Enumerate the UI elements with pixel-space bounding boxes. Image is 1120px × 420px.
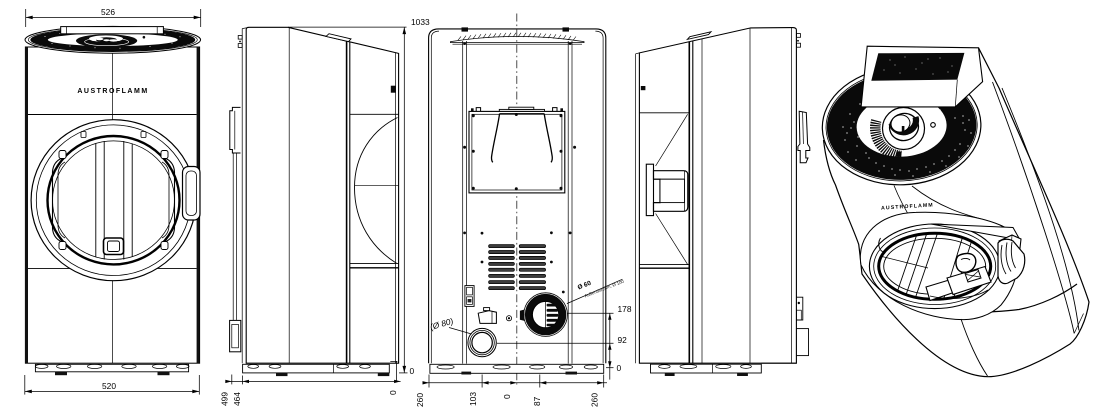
svg-text:520: 520	[102, 381, 116, 391]
svg-text:0: 0	[388, 390, 398, 395]
svg-text:499: 499	[220, 392, 230, 406]
svg-text:526: 526	[101, 7, 115, 17]
svg-text:92: 92	[618, 335, 628, 345]
svg-text:1033: 1033	[411, 17, 430, 27]
svg-text:103: 103	[468, 392, 478, 406]
svg-text:0: 0	[617, 363, 622, 373]
svg-text:0: 0	[502, 394, 512, 399]
svg-text:464: 464	[232, 392, 242, 406]
svg-text:260: 260	[590, 393, 600, 407]
svg-text:178: 178	[618, 304, 632, 314]
svg-text:0: 0	[410, 366, 415, 376]
svg-text:260: 260	[415, 393, 425, 407]
svg-text:87: 87	[532, 396, 542, 406]
svg-text:AUSTROFLAMM: AUSTROFLAMM	[77, 88, 148, 95]
